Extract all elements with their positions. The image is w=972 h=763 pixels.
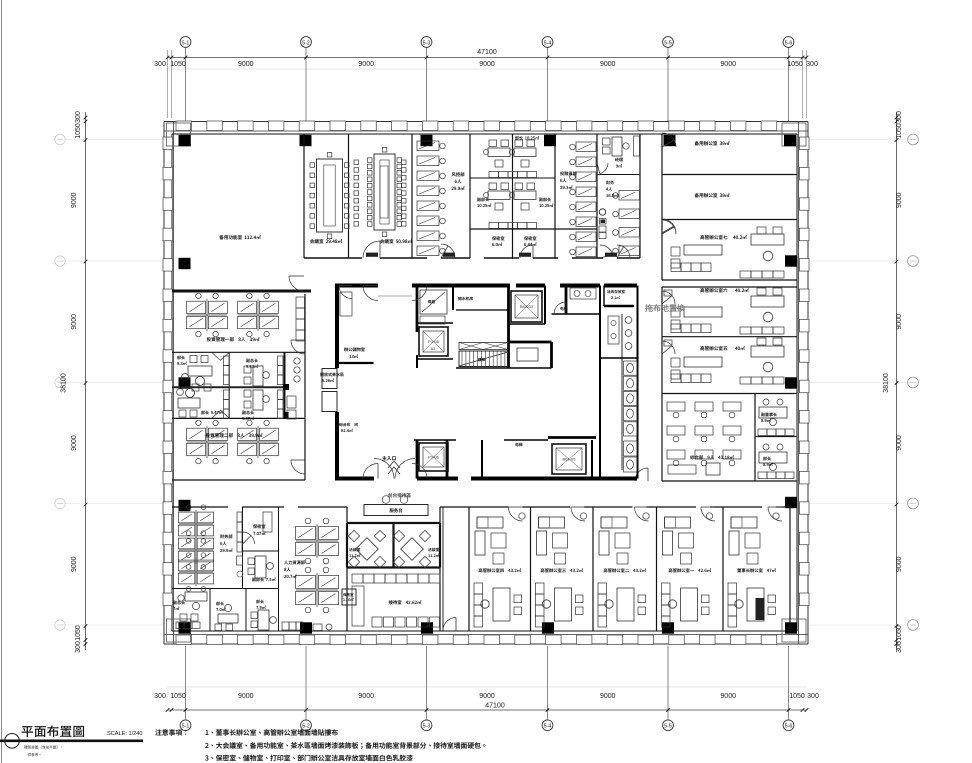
- svg-text:5-3: 5-3: [423, 40, 431, 46]
- svg-text:B01-05: B01-05: [563, 457, 577, 462]
- svg-text:47100: 47100: [485, 703, 505, 710]
- svg-text:9000: 9000: [71, 192, 78, 208]
- svg-text:9000: 9000: [358, 61, 374, 68]
- svg-text:9000: 9000: [71, 435, 78, 451]
- svg-text:B02-03: B02-03: [520, 304, 534, 309]
- svg-text:9000: 9000: [896, 556, 903, 572]
- svg-text:9000: 9000: [720, 693, 736, 700]
- svg-text:1050: 1050: [170, 693, 186, 700]
- svg-text:5-4: 5-4: [544, 724, 552, 730]
- svg-text:5-4: 5-4: [544, 40, 552, 46]
- svg-text:1050: 1050: [896, 123, 903, 139]
- svg-text:5-1: 5-1: [182, 724, 190, 730]
- svg-text:9000: 9000: [896, 192, 903, 208]
- svg-text:300: 300: [75, 111, 82, 123]
- svg-text:5-5: 5-5: [664, 40, 672, 46]
- svg-text:47100: 47100: [477, 49, 497, 56]
- svg-text:9000: 9000: [71, 314, 78, 330]
- svg-text:5-6: 5-6: [785, 724, 793, 730]
- svg-text:9000: 9000: [600, 61, 616, 68]
- svg-text:5-2: 5-2: [302, 724, 310, 730]
- svg-text:9000: 9000: [720, 61, 736, 68]
- svg-text:300: 300: [807, 693, 819, 700]
- svg-text:9000: 9000: [71, 556, 78, 572]
- svg-text:38100: 38100: [61, 373, 68, 393]
- svg-text:1050: 1050: [75, 123, 82, 139]
- svg-text:9000: 9000: [358, 693, 374, 700]
- svg-text:9000: 9000: [479, 61, 495, 68]
- svg-text:9000: 9000: [896, 314, 903, 330]
- svg-text:1050: 1050: [170, 61, 186, 68]
- svg-text:P1-08: P1-08: [428, 339, 439, 344]
- svg-text:5-6: 5-6: [785, 40, 793, 46]
- svg-text:9000: 9000: [479, 693, 495, 700]
- svg-text:P1-06: P1-06: [428, 455, 439, 460]
- svg-text:1050: 1050: [896, 625, 903, 641]
- svg-text:9000: 9000: [238, 61, 254, 68]
- svg-text:5-5: 5-5: [664, 724, 672, 730]
- svg-text:5-1: 5-1: [182, 40, 190, 46]
- svg-text:SCALE: 1/240: SCALE: 1/240: [107, 731, 142, 737]
- svg-text:300: 300: [806, 61, 818, 68]
- svg-text:9000: 9000: [600, 693, 616, 700]
- svg-text:1050: 1050: [789, 693, 805, 700]
- svg-text:1050: 1050: [787, 61, 803, 68]
- svg-text:A3: A3: [431, 347, 435, 351]
- svg-text:1050: 1050: [75, 625, 82, 641]
- svg-text:5-2: 5-2: [302, 40, 310, 46]
- svg-text:9000: 9000: [896, 435, 903, 451]
- svg-text:38100: 38100: [883, 373, 890, 393]
- svg-text:300: 300: [896, 111, 903, 123]
- svg-text:300: 300: [896, 641, 903, 653]
- svg-text:5-3: 5-3: [423, 724, 431, 730]
- svg-text:300: 300: [154, 61, 166, 68]
- svg-text:300: 300: [75, 641, 82, 653]
- svg-text:300: 300: [154, 693, 166, 700]
- svg-text:9000: 9000: [238, 693, 254, 700]
